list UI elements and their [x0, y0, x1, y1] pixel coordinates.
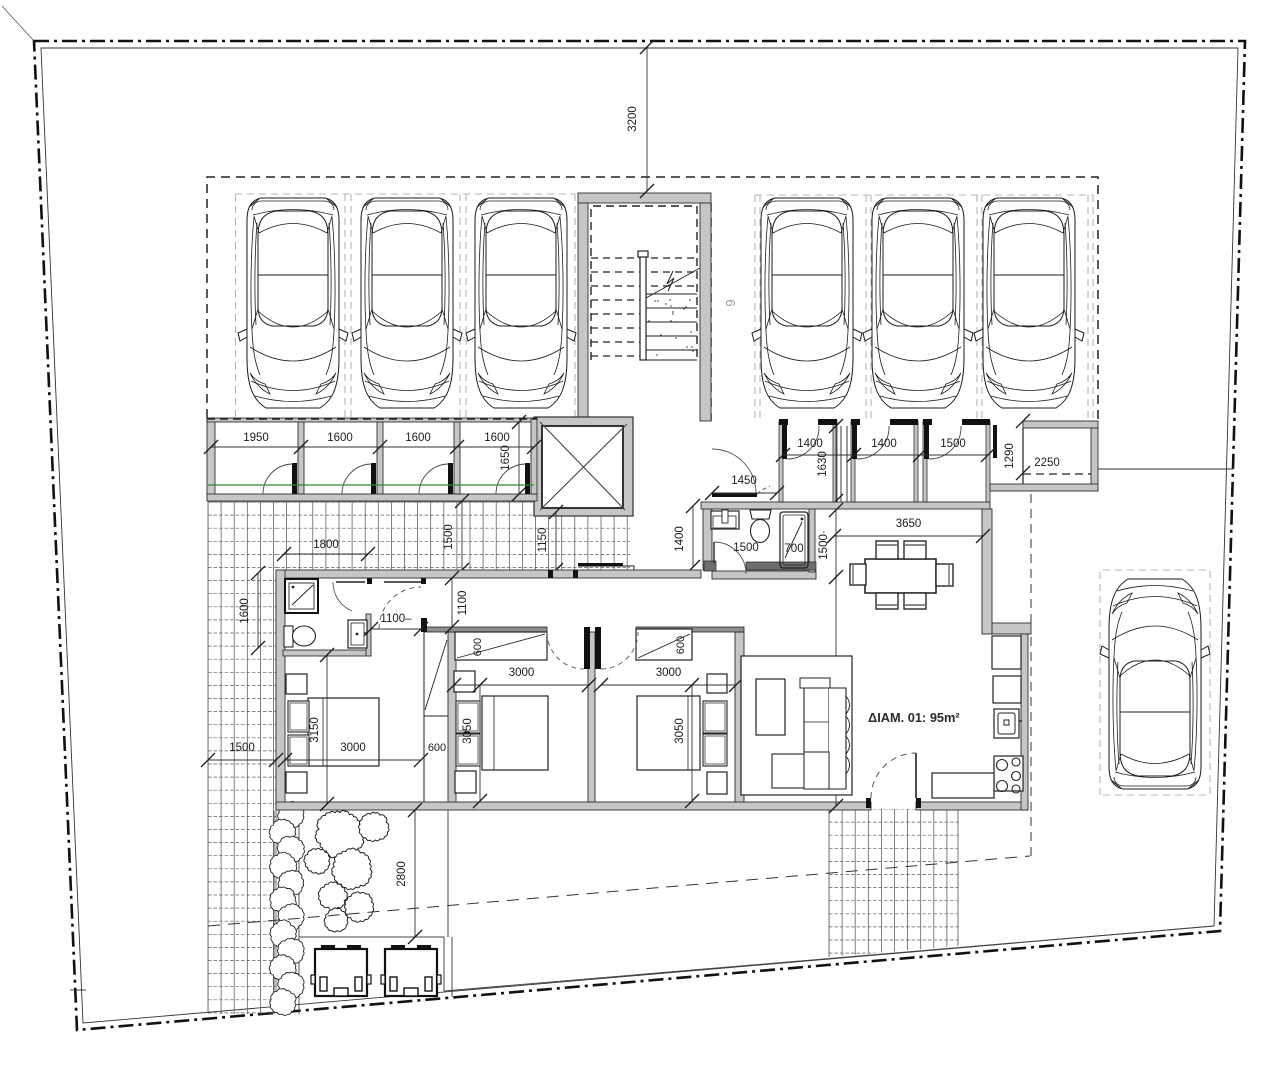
- svg-text:1290: 1290: [1004, 443, 1016, 469]
- svg-text:1600: 1600: [327, 432, 353, 444]
- svg-text:1500: 1500: [443, 524, 455, 550]
- svg-text:2250: 2250: [1034, 457, 1060, 469]
- svg-text:1800: 1800: [313, 539, 339, 551]
- svg-text:2800: 2800: [396, 861, 408, 887]
- svg-text:1630: 1630: [817, 451, 829, 477]
- svg-text:1600: 1600: [239, 598, 251, 624]
- svg-text:3150: 3150: [309, 717, 321, 743]
- svg-text:3000: 3000: [656, 667, 682, 679]
- svg-text:600: 600: [675, 636, 687, 654]
- svg-text:1600: 1600: [484, 432, 510, 444]
- svg-text:3200: 3200: [627, 106, 639, 132]
- svg-text:1500: 1500: [733, 542, 759, 554]
- svg-text:1500: 1500: [229, 742, 255, 754]
- svg-text:3050: 3050: [674, 718, 686, 744]
- svg-text:1100–: 1100–: [380, 613, 412, 625]
- svg-text:1400: 1400: [797, 438, 823, 450]
- svg-text:1500: 1500: [940, 438, 966, 450]
- svg-text:1500·: 1500·: [818, 530, 830, 559]
- svg-text:1400: 1400: [674, 526, 686, 552]
- svg-text:700: 700: [784, 543, 803, 555]
- svg-text:1400: 1400: [871, 438, 897, 450]
- svg-text:600: 600: [472, 638, 484, 656]
- svg-text:600: 600: [428, 742, 446, 754]
- svg-text:ΔΙΑΜ. 01: 95m²: ΔΙΑΜ. 01: 95m²: [868, 710, 960, 725]
- svg-text:1650: 1650: [500, 445, 512, 471]
- svg-text:1600: 1600: [405, 432, 431, 444]
- svg-text:1150: 1150: [537, 528, 549, 553]
- svg-text:3650: 3650: [896, 518, 922, 530]
- svg-text:9: 9: [723, 299, 738, 306]
- svg-text:3000: 3000: [340, 742, 366, 754]
- svg-text:1450: 1450: [731, 475, 757, 487]
- svg-text:3050: 3050: [462, 718, 474, 744]
- svg-text:3000: 3000: [509, 667, 535, 679]
- svg-text:1950: 1950: [243, 432, 269, 444]
- svg-text:1100: 1100: [457, 591, 469, 616]
